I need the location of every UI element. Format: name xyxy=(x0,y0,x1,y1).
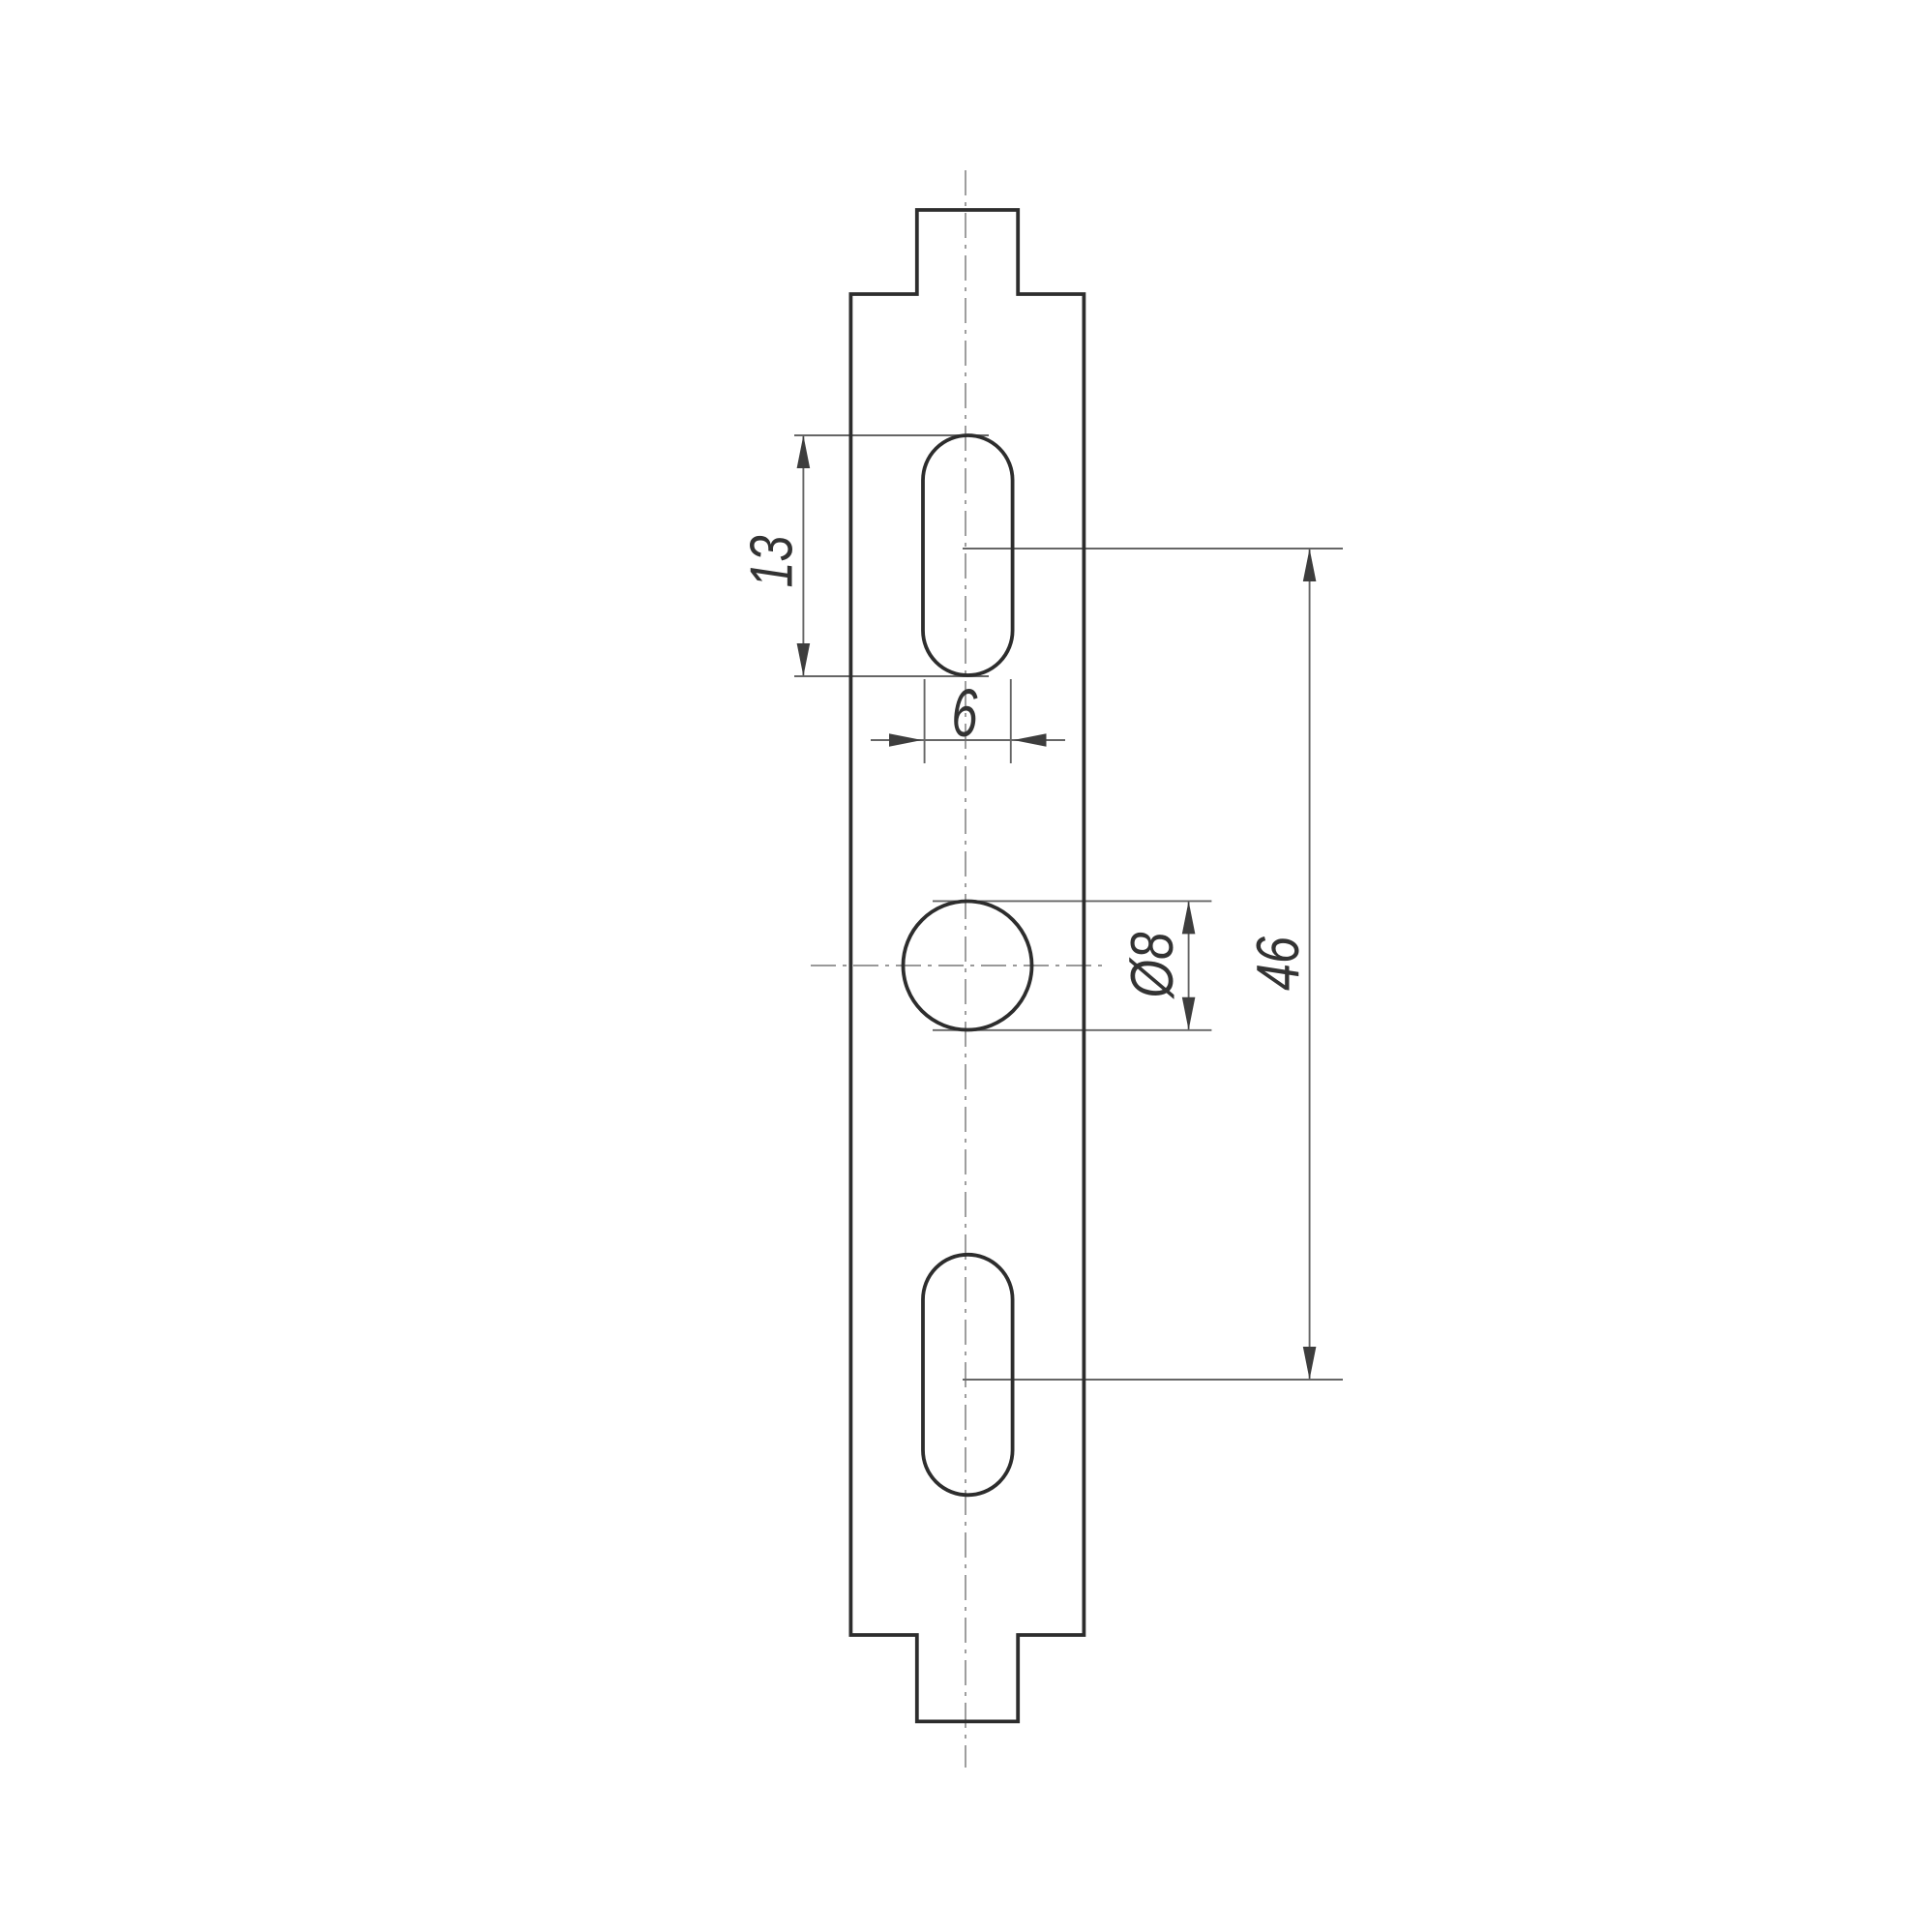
svg-text:13: 13 xyxy=(739,536,806,588)
svg-text:6: 6 xyxy=(952,675,978,751)
svg-text:46: 46 xyxy=(1245,936,1312,991)
svg-text:Ø8: Ø8 xyxy=(1119,932,1186,999)
